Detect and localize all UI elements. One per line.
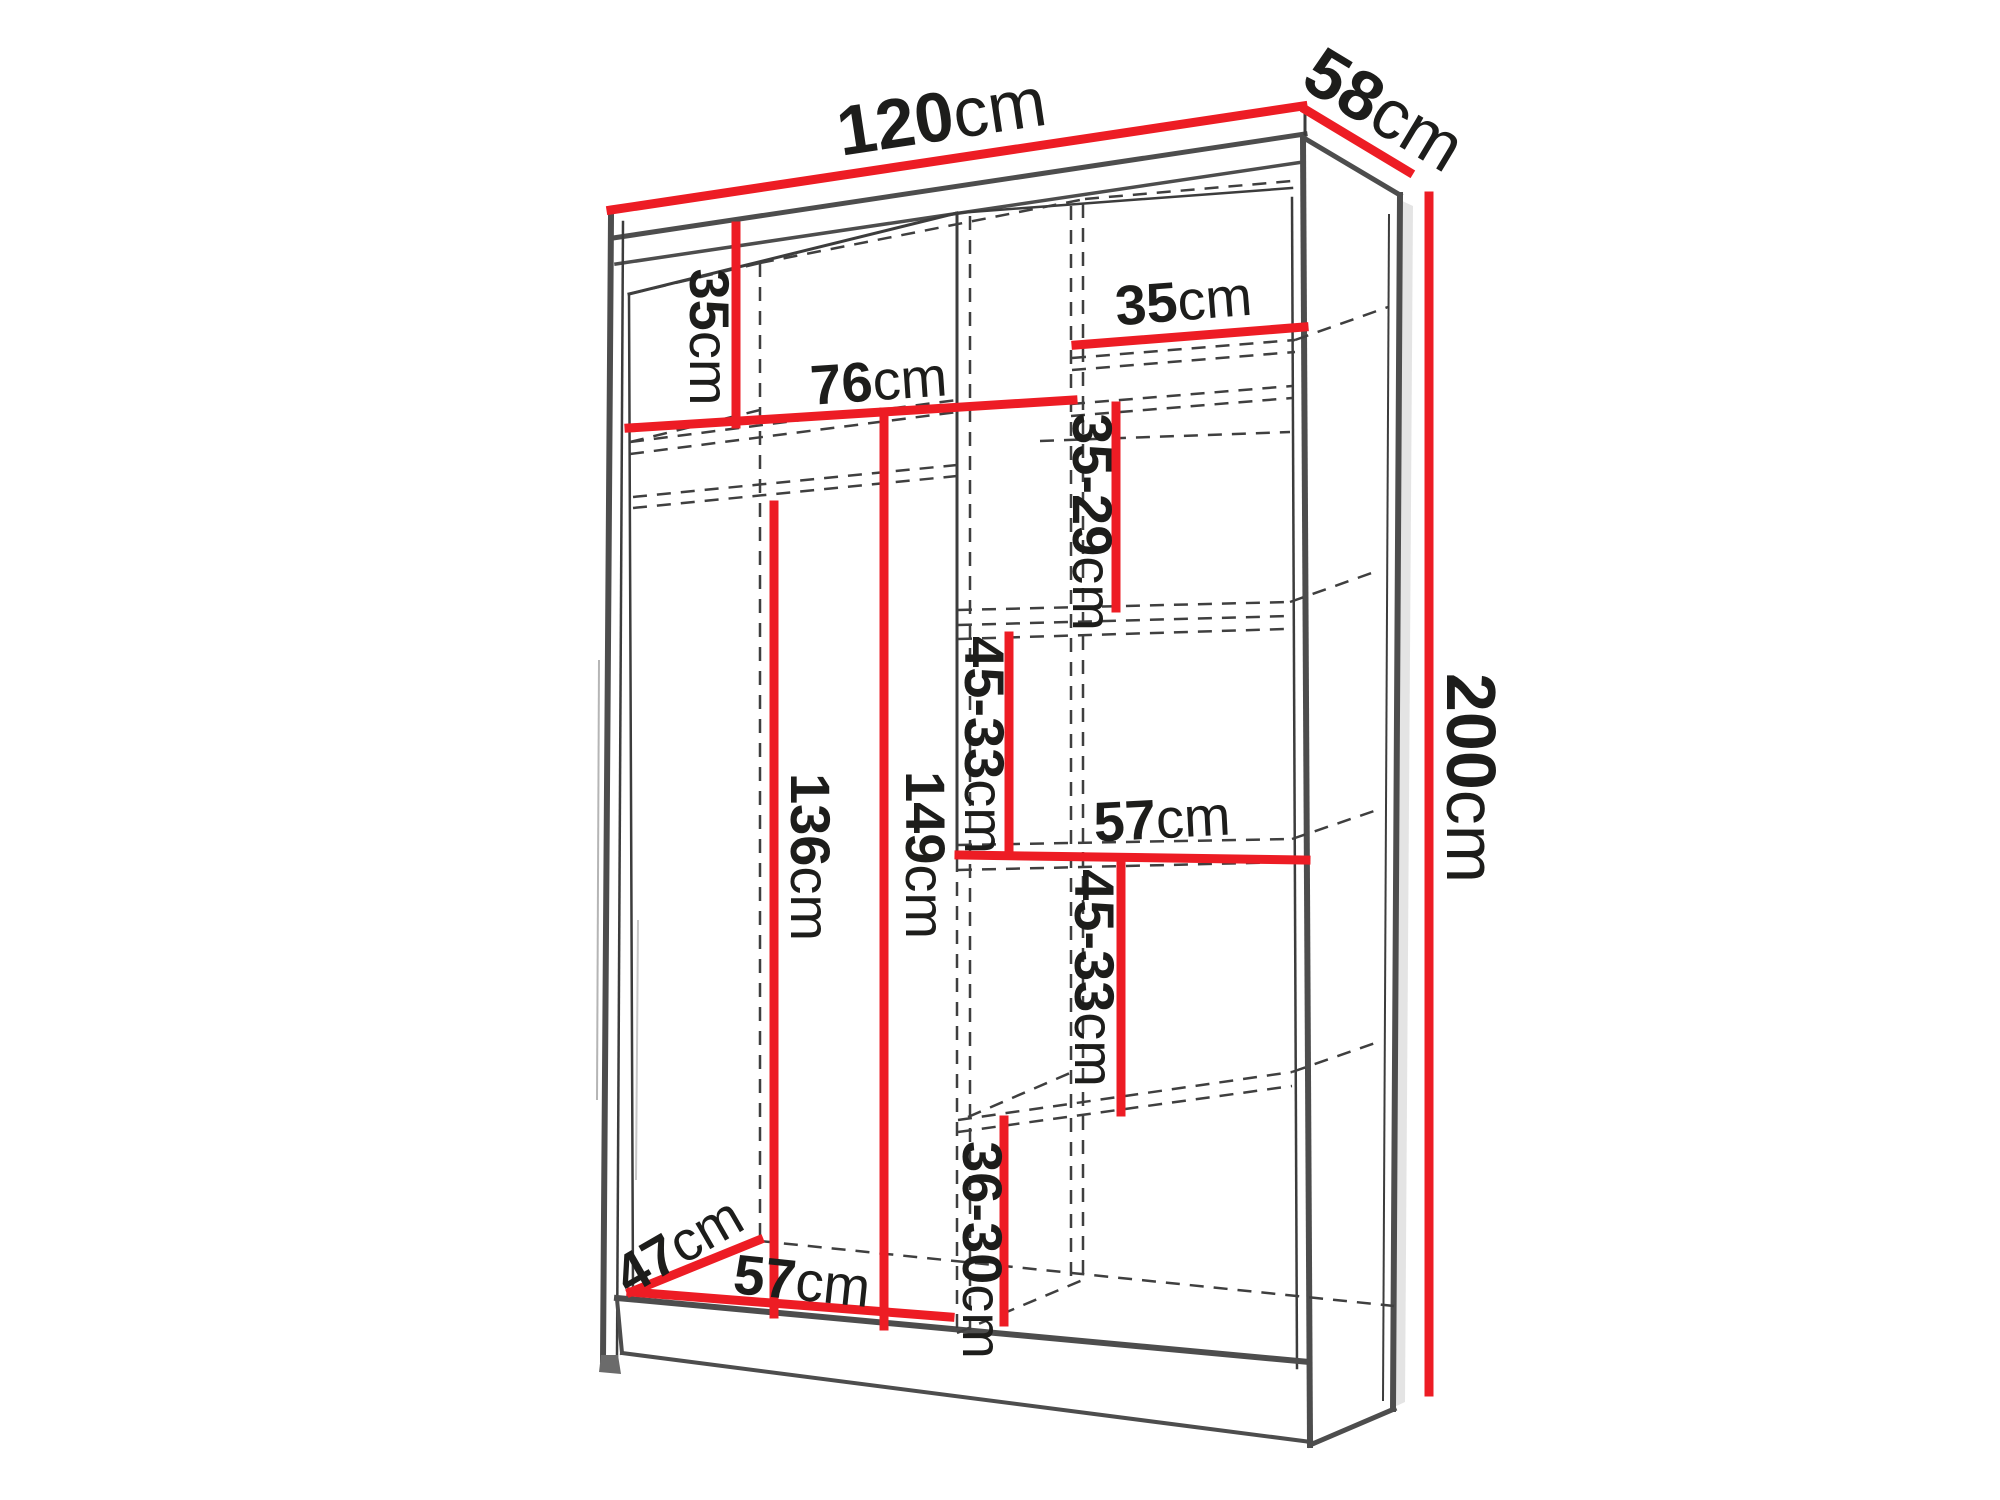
plinth-bottom-edge (622, 1353, 1311, 1442)
left-panel-reflection-2 (636, 920, 638, 1180)
bottom-right-side-edge (1310, 1409, 1394, 1445)
label-gap-45-33-a: 45-33cm (953, 636, 1016, 854)
label-width-120: 120cm (832, 62, 1051, 171)
interior-ceiling-edge-right (957, 188, 1292, 213)
wardrobe-dimension-diagram: 120cm 58cm 200cm 35cm 76cm 35cm 35-29cm … (0, 0, 2000, 1500)
right-shelfB-front-edge (1071, 386, 1292, 404)
label-right-shelf-35: 35cm (1113, 264, 1254, 338)
diagram-canvas: 120cm 58cm 200cm 35cm 76cm 35cm 35-29cm … (0, 0, 2000, 1500)
label-left-width-76: 76cm (808, 344, 949, 416)
label-left-height-149: 149cm (894, 771, 957, 939)
label-left-shelf-35: 35cm (678, 269, 741, 406)
label-depth-58: 58cm (1291, 32, 1478, 187)
right-wall-inner-edge (1292, 198, 1297, 1368)
label-hanging-136: 136cm (779, 773, 842, 941)
left-outer-edge (603, 216, 611, 1360)
label-height-200: 200cm (1432, 673, 1510, 883)
back-right-inner-edge (1383, 215, 1389, 1400)
left-foot (599, 1355, 621, 1374)
label-gap-35-29: 35-29cm (1061, 413, 1124, 631)
label-mid-width-57: 57cm (1092, 783, 1232, 853)
left-panel-reflection (597, 660, 599, 1100)
left-inner-edge (617, 222, 623, 1356)
label-gap-36-30: 36-30cm (951, 1141, 1014, 1359)
label-depth-47: 47cm (603, 1184, 753, 1307)
dim-line-mid-width-57 (959, 855, 1306, 860)
left-wall-inner-front-edge (629, 294, 633, 1293)
right-shelf0-depth-tick (1295, 307, 1388, 340)
plinth-right-edge (1309, 1362, 1311, 1442)
label-gap-45-33-b: 45-33cm (1063, 869, 1126, 1087)
